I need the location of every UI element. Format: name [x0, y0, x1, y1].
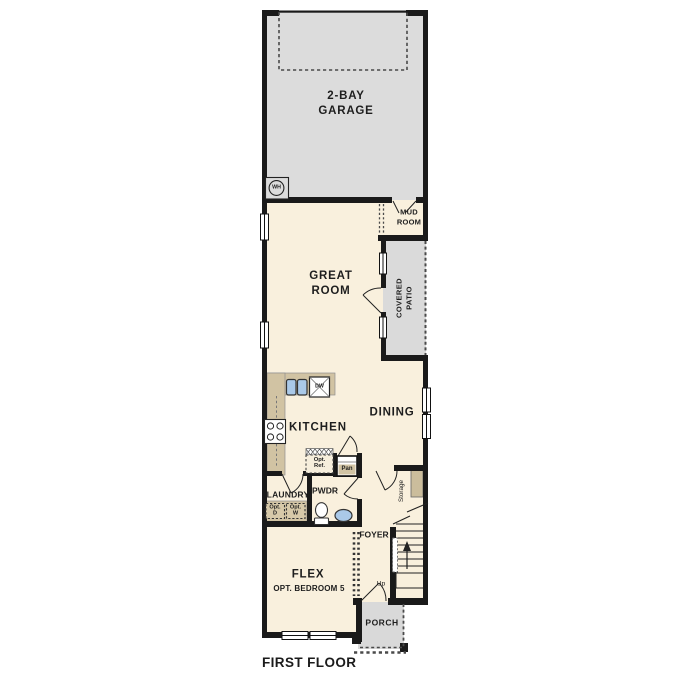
opt-washer-label: Opt.W: [290, 504, 301, 517]
powder-label: PWDR: [312, 485, 338, 496]
water-heater-label: WH: [272, 185, 281, 192]
dishwasher-label: DW: [315, 384, 324, 391]
window-symbol: [261, 322, 269, 348]
opt-dryer-label: Opt.D: [269, 504, 280, 517]
flex-sublabel: OPT. BEDROOM 5: [273, 584, 344, 594]
floor-plan: 2-BAYGARAGE GREATROOM MUDROOM COVEREDPAT…: [0, 0, 687, 687]
storage-label: Storage: [398, 480, 406, 502]
dining-label: DINING: [369, 406, 414, 421]
laundry-label: LAUNDRY: [267, 489, 310, 500]
storage-shelf: [411, 470, 423, 497]
great-room-label: GREATROOM: [309, 269, 352, 299]
toilet-icon: [315, 503, 329, 525]
window-symbol: [282, 632, 308, 640]
garage-label: 2-BAYGARAGE: [318, 89, 373, 119]
window-symbol: [423, 388, 431, 412]
opt-ref-label: Opt.Ref.: [314, 457, 326, 471]
plan-caption: FIRST FLOOR: [262, 655, 356, 670]
stove-icon: [265, 420, 286, 444]
flex-label: FLEX: [292, 568, 325, 583]
porch-label: PORCH: [365, 617, 398, 628]
window-symbol: [261, 214, 269, 240]
stair-railing: [393, 538, 398, 572]
window-symbol: [380, 253, 387, 274]
sink-icon: [335, 510, 352, 522]
foyer-label: FOYER: [359, 529, 388, 540]
window-symbol: [423, 415, 431, 439]
window-symbol: [380, 317, 387, 338]
covered-patio-label: COVEREDPATIO: [394, 278, 414, 318]
mud-room-label: MUDROOM: [397, 207, 421, 227]
window-symbol: [310, 632, 336, 640]
up-label: Up: [377, 581, 386, 590]
pantry-label: Pan: [341, 466, 352, 474]
kitchen-label: KITCHEN: [289, 421, 347, 436]
